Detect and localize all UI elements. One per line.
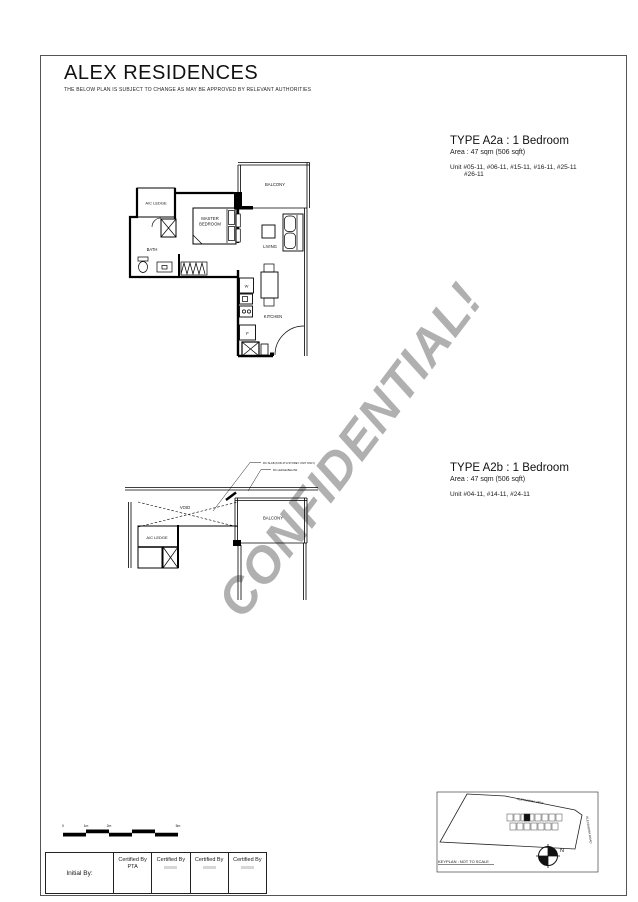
type-a2a-info: TYPE A2a : 1 Bedroom Area : 47 sqm (506 … [450,135,625,178]
compass [536,844,560,868]
signature-mark [164,866,177,869]
a2a-master-label-1: MASTER [201,216,218,221]
type-a2b-info: TYPE A2b : 1 Bedroom Area : 47 sqm (506 … [450,462,625,498]
certified-by-cell-2: Certified By [151,853,189,893]
a2b-note-rc-slab: RC SLAB (FOR 4TH STOREY UNIT ONLY) [263,461,315,465]
plan-a2a-drawing: A/C LEDGE BATH MASTER BEDROOM BALCONY LI… [123,152,318,367]
a2a-bath-label: BATH [147,247,158,252]
a2a-washer-label: W [245,284,249,289]
certified-by-cell-3: Certified By [190,853,228,893]
a2a-living-label: LIVING [263,244,277,249]
scale-bar-labels: 0 1m 2m 5m [62,824,180,828]
street-right-label: ALEXANDRA ROAD [585,816,593,845]
type-a2a-units-line2: #26-11 [464,171,625,178]
scale-bar: 0 1m 2m 5m [56,818,186,842]
building-footprint [507,814,562,830]
scale-5m-label: 5m [176,824,181,828]
type-a2b-title: TYPE A2b : 1 Bedroom [450,462,625,474]
keyplan-caption: KEYPLAN : NOT TO SCALE [438,859,489,864]
a2a-fridge-label: F [246,331,249,336]
a2a-balcony-label: BALCONY [265,182,285,187]
certified-by-1: Certified By [118,857,146,863]
a2b-note-rc-ledge: RC LEDGE BELOW [273,468,298,472]
certified-by-pta: PTA [127,864,137,870]
floorplan-page: ALEX RESIDENCES THE BELOW PLAN IS SUBJEC… [0,0,638,902]
certified-by-cell-4: Certified By [228,853,266,893]
street-top-label: ALEXANDRA VIEW [517,797,544,805]
scale-bar-segments [63,830,178,837]
type-a2b-area: Area : 47 sqm (506 sqft) [450,476,625,483]
a2a-walls [130,163,310,357]
a2a-ac-ledge-label: A/C LEDGE [145,201,167,206]
a2a-kitchen-label: KITCHEN [264,314,282,319]
scale-0-label: 0 [62,824,64,828]
initial-by-label: Initial By: [46,853,113,893]
certified-by-pta-cell: Certified By PTA [113,853,151,893]
highlighted-unit [524,814,530,821]
type-a2a-units-line1: Unit #05-11, #06-11, #15-11, #16-11, #25… [450,164,625,171]
a2b-annotations [213,463,271,512]
a2a-room-labels: A/C LEDGE BATH MASTER BEDROOM BALCONY LI… [145,182,285,336]
header: ALEX RESIDENCES THE BELOW PLAN IS SUBJEC… [64,62,311,93]
a2b-ac-ledge-label: A/C LEDGE [146,535,168,540]
type-a2b-units-line1: Unit #04-11, #14-11, #24-11 [450,491,625,498]
signature-mark [203,866,216,869]
certified-by-2: Certified By [157,857,185,863]
scale-1m-label: 1m [84,824,89,828]
signature-mark [241,866,254,869]
scale-2m-label: 2m [107,824,112,828]
site-boundary [440,794,582,849]
a2b-void-label: VOID [180,505,190,510]
certified-by-3: Certified By [195,857,223,863]
certified-by-4: Certified By [233,857,261,863]
north-label: N [560,848,564,854]
initial-by-table: Initial By: Certified By PTA Certified B… [45,852,267,894]
disclaimer-text: THE BELOW PLAN IS SUBJECT TO CHANGE AS M… [64,87,311,93]
keyplan: ALEXANDRA VIEW ALEXANDRA ROAD KEYPLAN : … [430,786,602,876]
a2a-fixtures [138,208,304,356]
plan-a2b-drawing: VOID A/C LEDGE BALCONY RC SLAB (FOR 4TH … [123,450,363,605]
page-title: ALEX RESIDENCES [64,62,311,85]
a2b-balcony-label: BALCONY [263,516,283,521]
type-a2a-area: Area : 47 sqm (506 sqft) [450,149,625,156]
keyplan-caption-group: KEYPLAN : NOT TO SCALE [438,859,494,865]
a2a-master-label-2: BEDROOM [199,222,221,227]
a2b-walls [125,488,318,601]
type-a2a-title: TYPE A2a : 1 Bedroom [450,135,625,147]
